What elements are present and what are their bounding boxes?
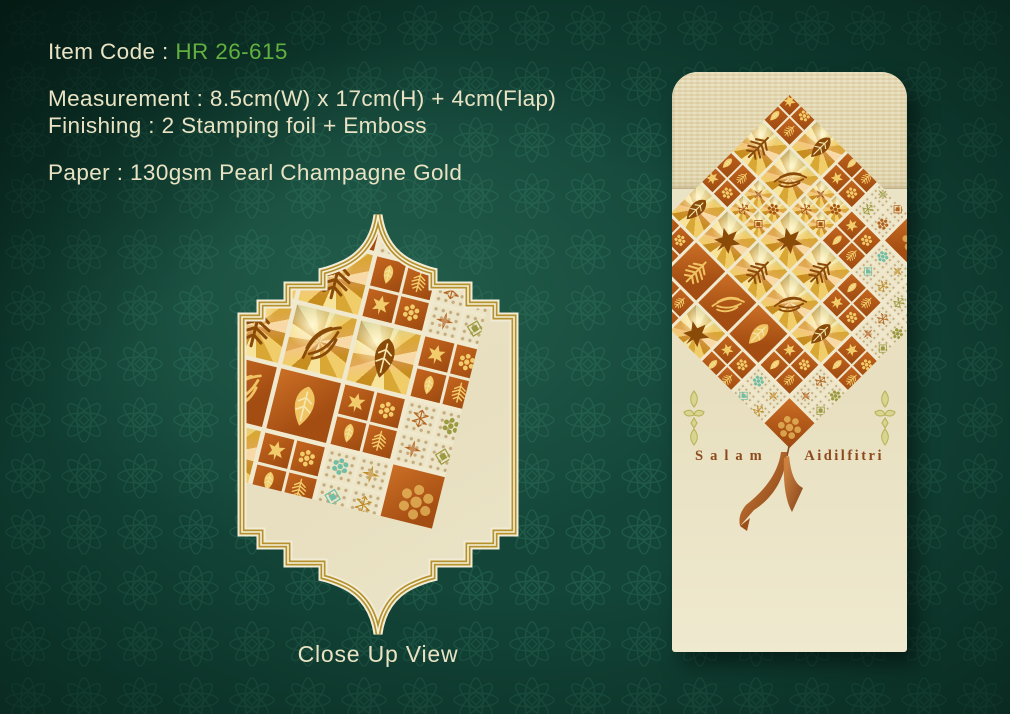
lattice-icon: [485, 355, 514, 384]
flake-icon: [731, 416, 754, 439]
palm-icon: [289, 311, 350, 372]
lattice-icon: [397, 571, 426, 600]
flower-icon: [293, 443, 322, 472]
flake-icon: [341, 523, 370, 552]
copper-mini-leaf-quad-tile: [410, 336, 485, 411]
star8-icon: [430, 307, 459, 336]
star8-icon: [809, 462, 832, 485]
copper-accent-tile: [378, 464, 453, 539]
item-code-value: HR 26-615: [175, 39, 287, 64]
oak-leaf-gold-tile: [346, 320, 421, 395]
flake-icon: [672, 385, 692, 408]
oak-leaf-gold-tile: [266, 368, 341, 443]
star8-icon: [477, 523, 506, 552]
flower-icon: [385, 471, 446, 532]
fern-icon: [349, 219, 378, 248]
flower-icon: [685, 400, 708, 423]
lattice-icon: [277, 507, 306, 536]
flake-icon: [413, 235, 442, 264]
oak-icon: [317, 211, 346, 240]
fern-icon: [365, 427, 394, 456]
fern-leaf-gold-tile: [218, 288, 293, 363]
flake-icon: [887, 291, 907, 314]
star8-icon: [333, 555, 362, 584]
maple-icon: [366, 291, 395, 320]
flake-icon: [903, 369, 907, 392]
item-code-line: Item Code : HR 26-615: [48, 38, 556, 65]
flower-icon: [453, 347, 482, 376]
cream-mini-motif-quad-tile: [314, 448, 389, 523]
lattice-icon: [318, 483, 347, 512]
star8-icon: [685, 369, 708, 392]
star8-icon: [872, 400, 895, 423]
flake-icon: [887, 385, 907, 408]
closeup-caption: Close Up View: [226, 641, 530, 668]
flake-icon: [374, 532, 403, 561]
fern-icon: [285, 475, 314, 504]
lattice-icon: [429, 443, 458, 472]
copper-mini-leaf-quad-tile: [362, 256, 437, 331]
envelope-product-image: Salam Aidilfitri: [672, 72, 907, 652]
copper-mini-leaf-quad-tile: [330, 384, 405, 459]
lattice-icon: [454, 484, 483, 513]
paper-line: Paper : 130gsm Pearl Champagne Gold: [48, 159, 556, 186]
flake-icon: [778, 493, 801, 516]
star8-icon: [398, 435, 427, 464]
flower-icon: [701, 416, 724, 439]
oak-icon: [273, 375, 334, 436]
cream-mini-motif-quad-tile: [761, 460, 819, 518]
fern-icon: [225, 295, 286, 356]
maple-icon: [261, 436, 290, 465]
flower-icon: [778, 463, 801, 486]
oak-icon: [373, 259, 402, 288]
cream-mini-motif-quad-tile: [298, 512, 373, 587]
star8-icon: [793, 478, 816, 501]
flower-icon: [903, 338, 907, 361]
fern-leaf-gold-tile: [298, 240, 373, 315]
flower-icon: [437, 411, 466, 440]
maple-icon: [241, 231, 302, 292]
star8-icon: [366, 563, 395, 592]
flower-icon: [438, 548, 467, 577]
cream-mini-motif-quad-tile: [394, 400, 469, 475]
cream-mini-motif-quad-tile: [234, 496, 309, 571]
star8-icon: [469, 555, 498, 584]
oak-icon: [334, 419, 363, 448]
lattice-icon: [763, 478, 786, 501]
lattice-icon: [872, 369, 895, 392]
palm-leaf-gold-tile: [282, 304, 357, 379]
product-spec-banner: Item Code : HR 26-615 Measurement : 8.5c…: [0, 0, 1010, 714]
flake-icon: [405, 404, 434, 433]
flower-icon: [501, 291, 530, 320]
flower-icon: [828, 403, 876, 451]
lattice-icon: [887, 354, 907, 377]
flower-icon: [269, 539, 298, 568]
star8-icon: [357, 459, 386, 488]
item-code-label: Item Code :: [48, 39, 175, 64]
lattice-icon: [747, 462, 770, 485]
flower-icon: [446, 515, 475, 544]
flower-icon: [856, 385, 879, 408]
oak-icon: [254, 467, 283, 496]
fern-icon: [445, 379, 474, 408]
spec-text-block: Item Code : HR 26-615 Measurement : 8.5c…: [48, 38, 556, 186]
cream-mini-motif-quad-tile: [426, 272, 501, 347]
flower-icon: [469, 283, 498, 312]
lattice-icon: [700, 385, 723, 408]
cream-mini-motif-quad-tile: [363, 528, 438, 603]
flower-icon: [325, 452, 354, 481]
lattice-icon: [382, 227, 411, 256]
flake-icon: [349, 491, 378, 520]
lattice-icon: [461, 315, 490, 344]
flower-icon: [373, 395, 402, 424]
closeup-photo: [226, 213, 530, 638]
lattice-icon: [309, 516, 338, 545]
maple-leaf-gold-tile: [234, 224, 309, 299]
lattice-icon: [716, 401, 739, 424]
cream-mini-motif-quad-tile: [427, 544, 502, 619]
flake-icon: [446, 243, 475, 272]
flower-icon: [477, 250, 506, 279]
oak-icon: [414, 371, 443, 400]
flower-icon: [672, 341, 689, 389]
lattice-icon: [485, 219, 514, 248]
lattice-icon: [430, 579, 459, 608]
closeup-frame: [226, 213, 530, 638]
flower-icon: [478, 387, 507, 416]
greeting-aidilfitri: Aidilfitri: [804, 448, 884, 465]
copper-mini-leaf-quad-tile: [250, 432, 325, 507]
flower-icon: [405, 539, 434, 568]
flower-icon: [397, 299, 426, 328]
greeting-salam: Salam: [695, 448, 769, 465]
measurement-line: Measurement : 8.5cm(W) x 17cm(H) + 4cm(F…: [48, 85, 556, 112]
cream-mini-motif-quad-tile: [442, 208, 517, 283]
cream-mini-motif-quad-tile: [443, 480, 518, 555]
flake-icon: [485, 491, 514, 520]
flake-icon: [437, 275, 466, 304]
finishing-line: Finishing : 2 Stamping foil + Emboss: [48, 112, 556, 139]
star8-icon: [453, 211, 482, 240]
flake-icon: [461, 587, 490, 616]
fern-icon: [405, 267, 434, 296]
greeting-text: Salam Aidilfitri: [672, 448, 907, 465]
maple-icon: [421, 339, 450, 368]
flower-icon: [302, 547, 331, 576]
maple-icon: [341, 388, 370, 417]
fern-icon: [305, 247, 366, 308]
flake-icon: [238, 531, 267, 560]
copper-accent-tile: [458, 416, 533, 491]
flower-icon: [465, 423, 526, 484]
lattice-icon: [494, 323, 523, 352]
oak-icon: [353, 327, 414, 388]
star8-icon: [245, 500, 274, 529]
